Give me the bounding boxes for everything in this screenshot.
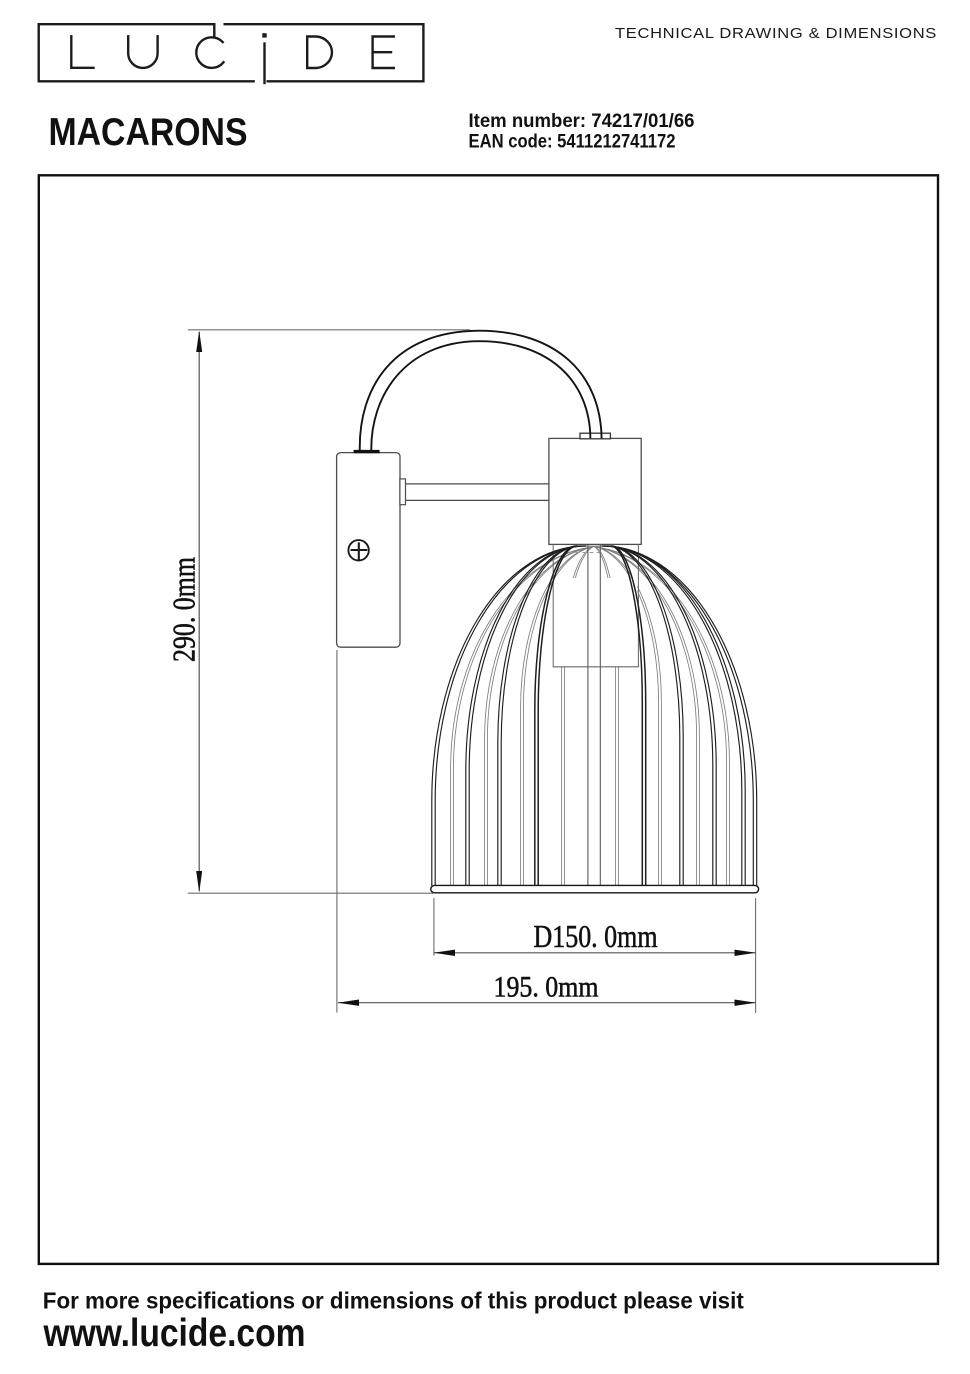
- svg-text:TECHNICAL DRAWING & DIMENSIONS: TECHNICAL DRAWING & DIMENSIONS: [615, 26, 937, 42]
- svg-text:EAN code: 5411212741172: EAN code: 5411212741172: [469, 130, 676, 152]
- svg-text:For more specifications or dim: For more specifications or dimensions of…: [43, 1287, 744, 1313]
- svg-text:195. 0mm: 195. 0mm: [494, 970, 599, 1003]
- svg-text:290. 0mm: 290. 0mm: [166, 557, 202, 662]
- svg-text:MACARONS: MACARONS: [49, 111, 248, 154]
- svg-text:Item number: 74217/01/66: Item number: 74217/01/66: [469, 110, 695, 132]
- svg-text:D150. 0mm: D150. 0mm: [534, 918, 658, 954]
- svg-text:www.lucide.com: www.lucide.com: [43, 1312, 306, 1355]
